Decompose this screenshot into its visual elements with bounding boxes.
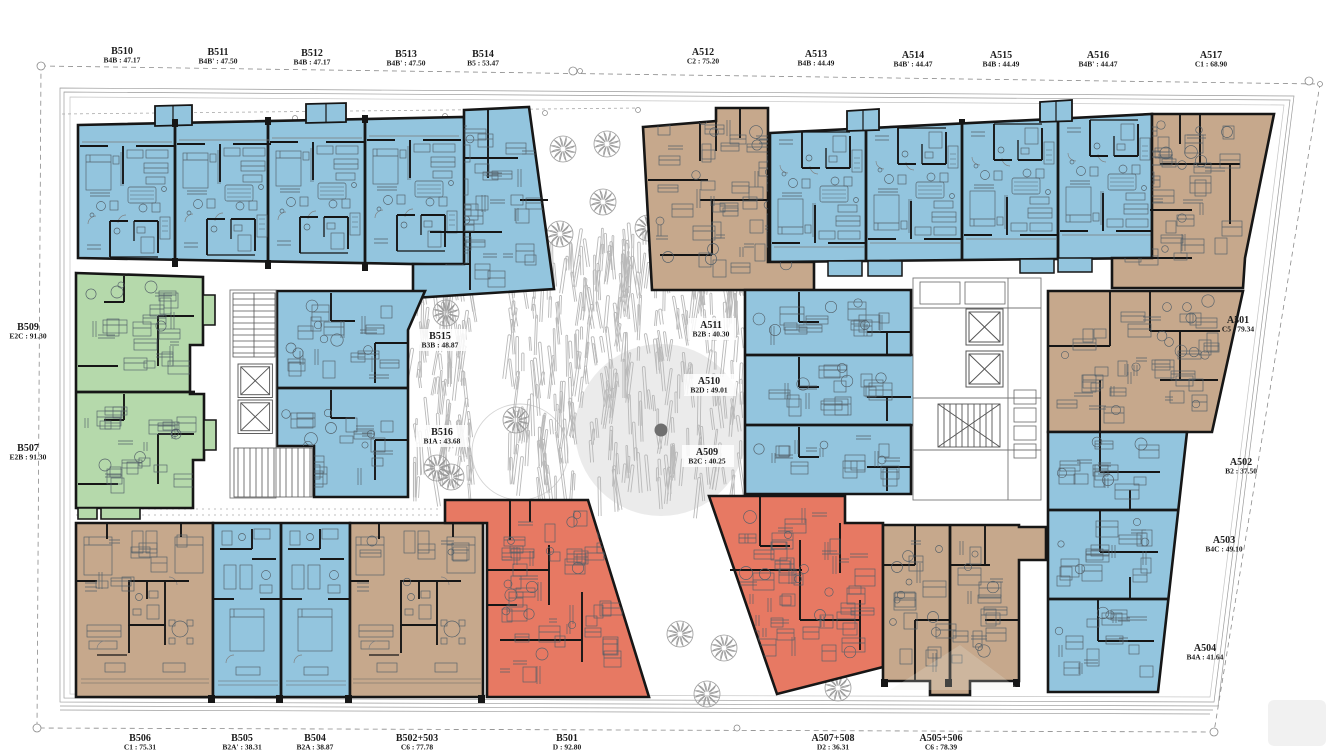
svg-text:B3B : 48.87: B3B : 48.87 [422,341,459,350]
svg-text:B2A' : 38.31: B2A' : 38.31 [222,743,262,752]
svg-text:B2D : 49.01: B2D : 49.01 [690,386,728,395]
svg-text:B4B' : 47.50: B4B' : 47.50 [387,59,426,68]
svg-text:B2 : 37.50: B2 : 37.50 [1225,467,1257,476]
svg-text:C6 : 78.39: C6 : 78.39 [925,743,958,752]
svg-text:C1 : 68.90: C1 : 68.90 [1195,60,1228,69]
svg-text:C6 : 77.78: C6 : 77.78 [401,743,434,752]
svg-text:B4B : 44.49: B4B : 44.49 [983,60,1020,69]
svg-text:E2C : 91.30: E2C : 91.30 [9,332,47,341]
svg-text:B1A : 43.68: B1A : 43.68 [424,437,461,446]
svg-text:C5 : 79.34: C5 : 79.34 [1222,325,1255,334]
svg-text:D2 : 36.31: D2 : 36.31 [817,743,850,752]
svg-text:E2B : 91.30: E2B : 91.30 [10,453,47,462]
svg-text:B4B' : 47.50: B4B' : 47.50 [199,57,238,66]
svg-text:B4B : 44.49: B4B : 44.49 [798,59,835,68]
svg-text:B4B' : 44.47: B4B' : 44.47 [894,60,933,69]
svg-text:C2 : 75.20: C2 : 75.20 [687,57,720,66]
svg-text:B5 : 53.47: B5 : 53.47 [467,59,499,68]
svg-text:B2A : 38.87: B2A : 38.87 [297,743,334,752]
svg-text:B4B : 47.17: B4B : 47.17 [104,56,141,65]
svg-text:B2B : 40.30: B2B : 40.30 [693,330,730,339]
svg-text:B4B : 47.17: B4B : 47.17 [294,58,331,67]
svg-text:D : 92.80: D : 92.80 [553,743,582,752]
svg-text:C1 : 75.31: C1 : 75.31 [124,743,157,752]
svg-text:B4A : 41.64: B4A : 41.64 [1187,653,1224,662]
svg-text:B4B' : 44.47: B4B' : 44.47 [1079,60,1118,69]
svg-text:B2C : 40.25: B2C : 40.25 [688,457,726,466]
svg-text:B4C : 49.10: B4C : 49.10 [1205,545,1243,554]
